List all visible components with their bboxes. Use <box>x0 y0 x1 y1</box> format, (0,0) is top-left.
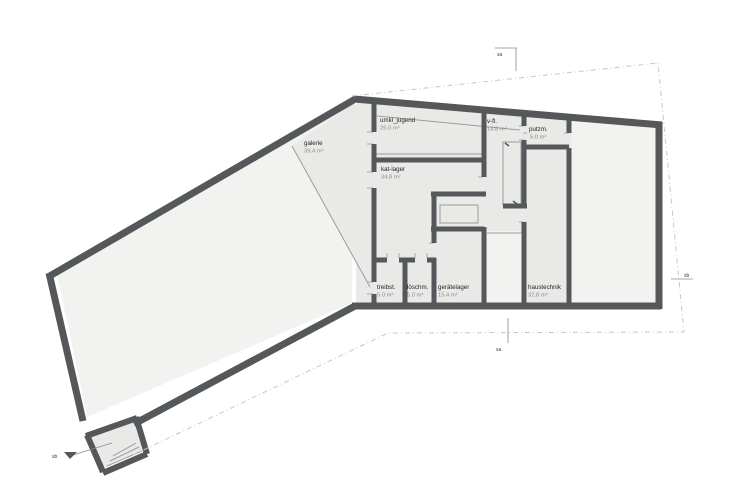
room-label-galerie: galerie <box>304 140 323 147</box>
room-area-galerie: 39.4 m² <box>304 149 324 155</box>
room-label-treibst: treibst. <box>377 284 396 291</box>
section-marker-label-3: sb <box>52 454 58 460</box>
room-area-haustechnik: 32.8 m² <box>528 293 548 299</box>
room-label-haustechnik: haustechnik <box>528 284 562 291</box>
floor-plan-canvas: galerie 39.4 m² umkl_jugend 25.0 m² v-fl… <box>0 0 753 502</box>
room-label-v-fl: v-fl. <box>487 118 497 125</box>
room-label-umkl-jugend: umkl_jugend <box>380 117 416 124</box>
room-area-kat-lager: 34.8 m² <box>381 175 401 181</box>
section-marker-label-1: sa <box>496 347 502 353</box>
room-area-loeschm: 5.0 m² <box>407 293 423 299</box>
room-area-umkl-jugend: 25.0 m² <box>380 126 400 132</box>
room-label-geraetelager: gerätelager <box>438 284 469 291</box>
floor-plan-geometry <box>48 63 684 473</box>
section-marker-label-0: sa <box>497 52 503 58</box>
room-label-loeschm: löschm. <box>407 284 429 291</box>
fill-stair-corridor <box>487 231 522 303</box>
floor-plan-sheet: galerie 39.4 m² umkl_jugend 25.0 m² v-fl… <box>0 0 753 502</box>
section-marker-arrow-3 <box>64 452 77 459</box>
fill-right-room <box>571 121 656 303</box>
room-area-treibst: 5.0 m² <box>377 293 393 299</box>
room-area-geraetelager: 15.4 m² <box>438 293 458 299</box>
room-label-putzm: putzm. <box>529 126 548 133</box>
room-area-putzm: 5.0 m² <box>530 135 546 141</box>
room-area-v-fl: 14.8 m² <box>487 127 507 133</box>
room-label-kat-lager: kat-lager <box>381 166 405 173</box>
section-marker-label-2: sb <box>684 273 690 279</box>
